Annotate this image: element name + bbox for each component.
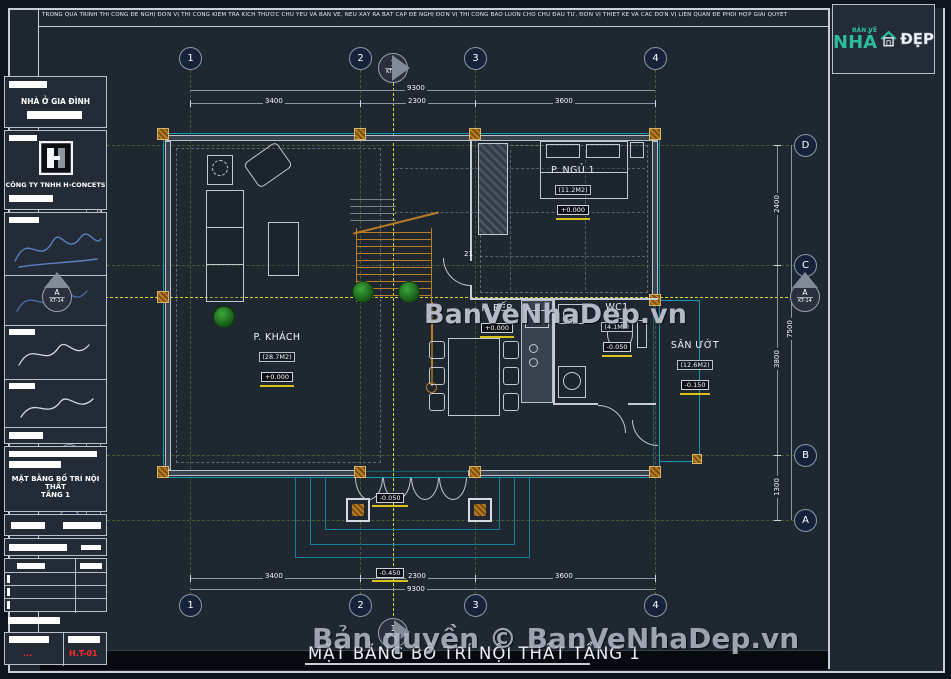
sheet-number: H.T-01 (69, 649, 97, 658)
sofa-cushion-line (206, 264, 244, 265)
dim-tick (774, 455, 781, 456)
project-box: NHÀ Ở GIA ĐÌNH (4, 76, 107, 128)
table-row-divider (5, 585, 106, 586)
grid-bubble-D-right: D (794, 134, 817, 157)
grid-bubble-3-top: 3 (464, 47, 487, 70)
stair-count-note: 21 (462, 250, 475, 258)
redacted-bar (7, 601, 10, 609)
redacted-bar (17, 563, 45, 569)
nightstand (630, 142, 644, 158)
porch-level-marker: -0.050 (372, 485, 408, 507)
signature-divider (5, 379, 106, 380)
door-leaf-arc (411, 478, 439, 500)
section-marker-top: 1 KT-15 (378, 53, 408, 83)
column (354, 128, 366, 140)
dining-table (448, 338, 500, 416)
level-underline (602, 355, 632, 357)
room-area: (11.2M2) (555, 185, 590, 195)
stove-burner-icon (529, 344, 538, 353)
redacted-bar (27, 111, 82, 119)
cad-sheet: TRONG QUÁ TRÌNH THI CÔNG ĐỀ NGHỊ ĐƠN VỊ … (0, 0, 951, 679)
grid-bubble-label: 1 (187, 53, 193, 64)
signature-scribble (9, 335, 104, 373)
wall-south-left (165, 470, 357, 476)
signature-divider (5, 427, 106, 428)
room-label-living: P. KHÁCH (28.7M2) +0.000 (232, 332, 322, 387)
grid-bubble-label: C (802, 260, 809, 271)
column (692, 454, 702, 464)
marker-sheet: KT-14 (797, 297, 813, 305)
table-row-divider (5, 572, 106, 573)
redacted-bar (80, 563, 102, 569)
washing-machine-drum-icon (563, 372, 581, 390)
house-logo-icon (879, 23, 898, 55)
grid-bubble-1-top: 1 (179, 47, 202, 70)
info-row (4, 614, 107, 630)
construction-note: TRONG QUÁ TRÌNH THI CÔNG ĐỀ NGHỊ ĐƠN VỊ … (42, 12, 822, 18)
pillow (586, 144, 620, 158)
grid-bubble-label: 2 (357, 600, 363, 611)
column (469, 128, 481, 140)
marker-sheet: KT-14 (49, 297, 65, 305)
wall-east-upper (652, 141, 658, 300)
grid-bubble-label: B (802, 450, 809, 461)
marker-number: A (802, 289, 807, 297)
title-block (828, 8, 943, 669)
title-underline (305, 663, 590, 665)
grid-bubble-4-top: 4 (644, 47, 667, 70)
ceiling-grid-line (480, 256, 645, 257)
sofa (206, 190, 244, 302)
redacted-bar (9, 544, 67, 551)
sofa-cushion-line (206, 227, 244, 228)
redacted-bar (9, 135, 37, 141)
sheet-title-line2: TẦNG 1 (5, 491, 106, 499)
dining-chair (429, 367, 445, 385)
stove-burner-icon (529, 358, 538, 367)
level-underline (480, 336, 514, 338)
bottom-watermark: Bản quyền © BanVeNhaDep.vn (312, 622, 799, 655)
room-area: (12.6M2) (677, 360, 712, 370)
wall-west (165, 141, 171, 470)
redacted-bar (9, 451, 97, 457)
dim-value: 2400 (773, 193, 781, 215)
info-row (4, 538, 107, 556)
note-divider (38, 26, 828, 27)
redacted-bar (9, 81, 47, 88)
wall-south-right (468, 470, 658, 476)
dim-tick (774, 145, 781, 146)
room-label-wet-yard: SÂN ƯỚT (12.6M2) -0.150 (660, 340, 730, 395)
marker-number: A (54, 289, 59, 297)
room-name: SÂN ƯỚT (660, 340, 730, 352)
pillow (546, 144, 580, 158)
grid-bubble-1-bottom: 1 (179, 594, 202, 617)
dim-tick (190, 575, 191, 582)
logo-dep-text: ĐẸP (900, 30, 934, 48)
level-underline (372, 580, 408, 582)
signature-scribble (9, 389, 104, 427)
signature-scribble (9, 223, 104, 271)
project-name: NHÀ Ở GIA ĐÌNH (5, 97, 106, 106)
scale-value: ... (23, 649, 32, 658)
logo-box: BẢN VẼ NHÀ ĐẸP (832, 4, 935, 74)
level-value: -0.050 (376, 493, 405, 503)
redacted-bar (8, 617, 60, 624)
table-lamp-icon (212, 160, 228, 176)
grid-bubble-B-right: B (794, 444, 817, 467)
grid-bubble-label: 4 (652, 600, 658, 611)
grid-bubble-2-bottom: 2 (349, 594, 372, 617)
grid-bubble-2-top: 2 (349, 47, 372, 70)
signature-box (4, 212, 107, 444)
dim-value: 3400 (263, 97, 285, 105)
redacted-bar (7, 588, 10, 596)
grid-bubble-label: 1 (187, 600, 193, 611)
column (157, 466, 169, 478)
porch-column (468, 498, 492, 522)
grid-bubble-label: 4 (652, 53, 658, 64)
redacted-bar (9, 195, 53, 202)
redacted-bar (9, 432, 43, 439)
company-name: CÔNG TY TNHH H-CONCETS (5, 181, 106, 189)
step-level-marker: -0.450 (372, 560, 408, 582)
cell-divider (63, 633, 64, 666)
level-value: -0.450 (376, 568, 405, 578)
level-underline (680, 393, 710, 395)
column (157, 128, 169, 140)
wardrobe (478, 143, 508, 235)
room-name: P. NGỦ 1 (528, 165, 618, 177)
dim-value: 3800 (773, 348, 781, 370)
grid-bubble-4-bottom: 4 (644, 594, 667, 617)
dim-value: 7500 (786, 318, 794, 340)
room-level: -0.050 (603, 342, 632, 352)
dim-tick (360, 100, 361, 107)
door-leaf-arc (439, 478, 467, 500)
column (354, 466, 366, 478)
section-marker-right: A KT-14 (790, 282, 820, 312)
level-underline (260, 385, 294, 387)
dim-tick (475, 575, 476, 582)
coffee-table (268, 222, 299, 276)
dim-value: 3600 (553, 97, 575, 105)
section-arrow-icon (392, 55, 410, 81)
bedroom-west-wall (470, 141, 472, 261)
dim-value: 3600 (553, 572, 575, 580)
revision-table (4, 558, 107, 612)
dim-tick (774, 520, 781, 521)
dim-value: 2300 (406, 97, 428, 105)
column (649, 466, 661, 478)
grid-bubble-3-bottom: 3 (464, 594, 487, 617)
redacted-bar (81, 545, 101, 550)
sheet-title-line1: MẶT BẰNG BỐ TRÍ NỘI THẤT (5, 475, 106, 491)
room-label-bedroom1: P. NGỦ 1 (11.2M2) +0.000 (528, 165, 618, 220)
wc-south-wall (553, 403, 598, 405)
logo-text-left: BẢN VẼ NHÀ (833, 27, 877, 51)
dining-chair (429, 341, 445, 359)
dim-value: 2300 (406, 572, 428, 580)
column (649, 128, 661, 140)
room-level: -0.150 (681, 380, 710, 390)
level-underline (372, 505, 408, 507)
redacted-bar (9, 636, 49, 643)
room-level: +0.000 (557, 205, 589, 215)
grid-bubble-label: D (802, 140, 810, 151)
section-arrow-icon (44, 272, 70, 288)
sheet-number-row: ... H.T-01 (4, 632, 107, 665)
dining-chair (503, 367, 519, 385)
center-watermark: BanVeNhaDep.vn (424, 299, 687, 330)
column (469, 466, 481, 478)
dining-chair (503, 341, 519, 359)
room-name: P. KHÁCH (232, 332, 322, 344)
redacted-bar (68, 636, 100, 643)
dim-tick (655, 100, 656, 107)
company-box: CÔNG TY TNHH H-CONCETS (4, 130, 107, 210)
dim-value: 3400 (263, 572, 285, 580)
redacted-bar (7, 575, 10, 583)
plant-icon (213, 306, 235, 328)
signature-divider (5, 325, 106, 326)
plant-icon (398, 281, 420, 303)
room-area: (28.7M2) (259, 352, 294, 362)
logo-big-text: NHÀ (833, 34, 877, 51)
dim-tick (360, 575, 361, 582)
redacted-bar (63, 522, 101, 529)
grid-bubble-label: 2 (357, 53, 363, 64)
level-underline (556, 218, 590, 220)
dim-value: 9300 (405, 84, 427, 92)
table-column-divider (75, 559, 76, 613)
room-level: +0.000 (261, 372, 293, 382)
dim-tick (190, 100, 191, 107)
section-arrow-icon (792, 272, 818, 288)
redacted-bar (9, 461, 61, 468)
dim-tick (774, 265, 781, 266)
dining-chair (429, 393, 445, 411)
drawing-title-box: MẶT BẰNG BỐ TRÍ NỘI THẤT TẦNG 1 (4, 446, 107, 512)
grid-bubble-label: A (802, 515, 809, 526)
table-row-divider (5, 598, 106, 599)
redacted-bar (11, 522, 45, 529)
dim-value: 9300 (405, 585, 427, 593)
ceiling-grid-line (510, 150, 511, 290)
dim-tick (475, 100, 476, 107)
wc-south-wall (628, 403, 656, 405)
dim-tick (655, 575, 656, 582)
column (157, 291, 169, 303)
info-row (4, 514, 107, 536)
grid-bubble-A-right: A (794, 509, 817, 532)
grid-bubble-label: 3 (472, 600, 478, 611)
section-marker-left: A KT-14 (42, 282, 72, 312)
dining-chair (503, 393, 519, 411)
stairs-upper-flight (350, 193, 396, 227)
h-concepts-logo-icon (39, 141, 73, 175)
dim-value: 1300 (773, 476, 781, 498)
plant-icon (352, 281, 374, 303)
grid-bubble-label: 3 (472, 53, 478, 64)
